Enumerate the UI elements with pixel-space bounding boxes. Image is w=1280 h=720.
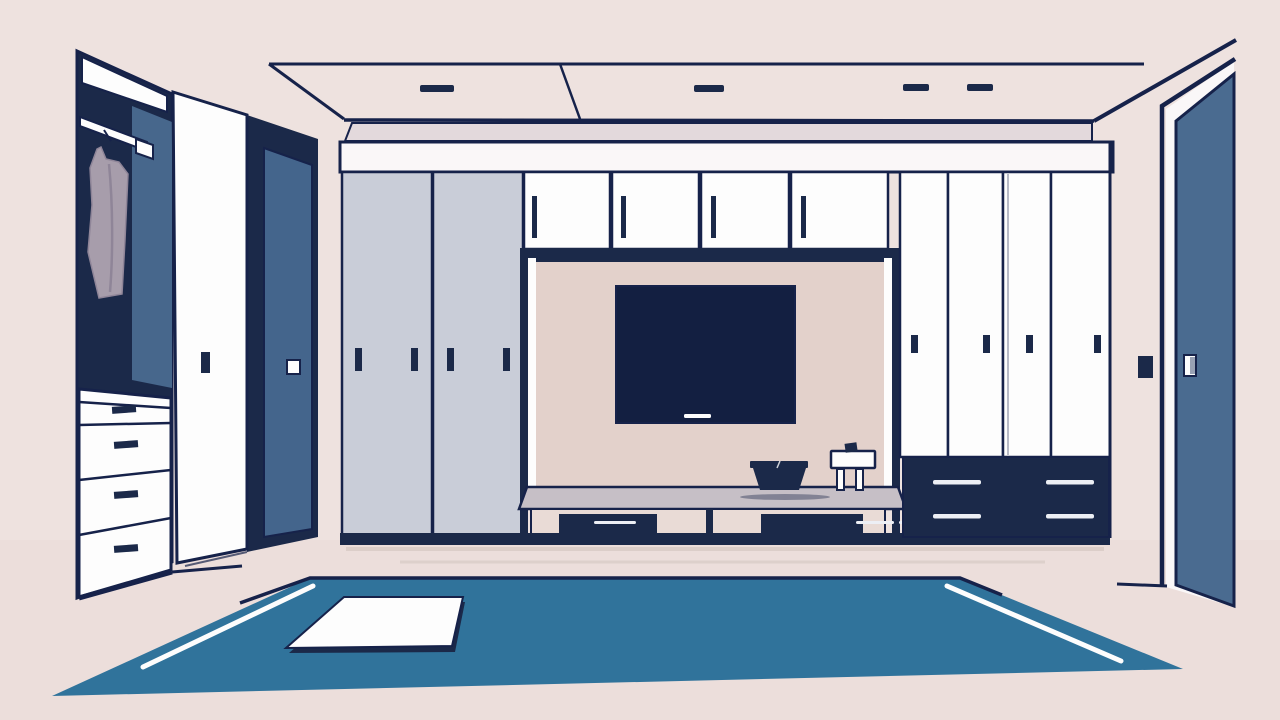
room-scene xyxy=(0,0,1280,720)
door-handle xyxy=(201,352,210,373)
cabinet-handle xyxy=(801,196,806,238)
door-handle xyxy=(447,348,454,371)
tv-logo-mark xyxy=(684,414,711,418)
room-illustration xyxy=(0,0,1280,720)
door-handle xyxy=(411,348,418,371)
drawer-handle-line xyxy=(933,480,981,485)
white-wardrobe-door xyxy=(1051,172,1110,457)
left-closet xyxy=(77,51,318,598)
door-handle xyxy=(1026,335,1033,353)
storage-box xyxy=(750,461,808,490)
drawer-handle-line xyxy=(933,514,981,519)
drawer-handle-line xyxy=(594,521,636,524)
recessed-light-icon xyxy=(967,84,993,91)
stand-leg xyxy=(856,469,863,490)
light-switch xyxy=(1138,356,1153,378)
ceiling-recess-front-edge xyxy=(344,120,1094,121)
drawer-handle-line xyxy=(856,521,894,524)
blue-door-panel xyxy=(1176,74,1234,606)
door-handle xyxy=(355,348,362,371)
white-wardrobe-door xyxy=(1003,172,1051,457)
cabinet-handle xyxy=(621,196,626,238)
open-closet-door xyxy=(173,92,247,563)
white-wardrobe-door xyxy=(948,172,1003,457)
hanging-garment xyxy=(88,147,128,298)
door-handle xyxy=(1094,335,1101,353)
cabinet-handle xyxy=(532,196,537,238)
bench-shadow xyxy=(740,494,830,500)
door-handle-shade xyxy=(1190,357,1195,374)
alcove-left-side-panel xyxy=(528,258,536,490)
alcove-top-frame xyxy=(520,248,900,262)
box-body xyxy=(753,468,806,490)
white-wardrobe-door xyxy=(900,172,948,457)
panel-handle xyxy=(287,360,300,374)
soffit-band xyxy=(345,123,1092,141)
valance-band xyxy=(340,142,1113,172)
right-wardrobe xyxy=(900,143,1110,538)
bench-divider xyxy=(706,509,713,534)
plinth-shadow xyxy=(346,547,1104,551)
recessed-light-icon xyxy=(903,84,929,91)
bench-drawer xyxy=(761,514,863,533)
tv-screen xyxy=(616,286,795,423)
stand-top xyxy=(831,451,875,468)
door-handle xyxy=(503,348,510,371)
door-handle xyxy=(983,335,990,353)
stand-knob xyxy=(845,442,858,453)
door-handle xyxy=(911,335,918,353)
navy-drawer-unit xyxy=(903,457,1109,537)
drawer-handle-line xyxy=(1046,514,1094,519)
threshold-line xyxy=(1117,584,1167,586)
alcove-right-side-panel xyxy=(884,258,892,490)
cabinet-handle xyxy=(711,196,716,238)
drawer-handle-line xyxy=(1046,480,1094,485)
recessed-light-icon xyxy=(420,85,454,92)
stand-leg xyxy=(837,469,844,490)
blue-sliding-panel xyxy=(264,148,312,537)
recessed-light-icon xyxy=(694,85,724,92)
bench-top xyxy=(519,487,906,509)
